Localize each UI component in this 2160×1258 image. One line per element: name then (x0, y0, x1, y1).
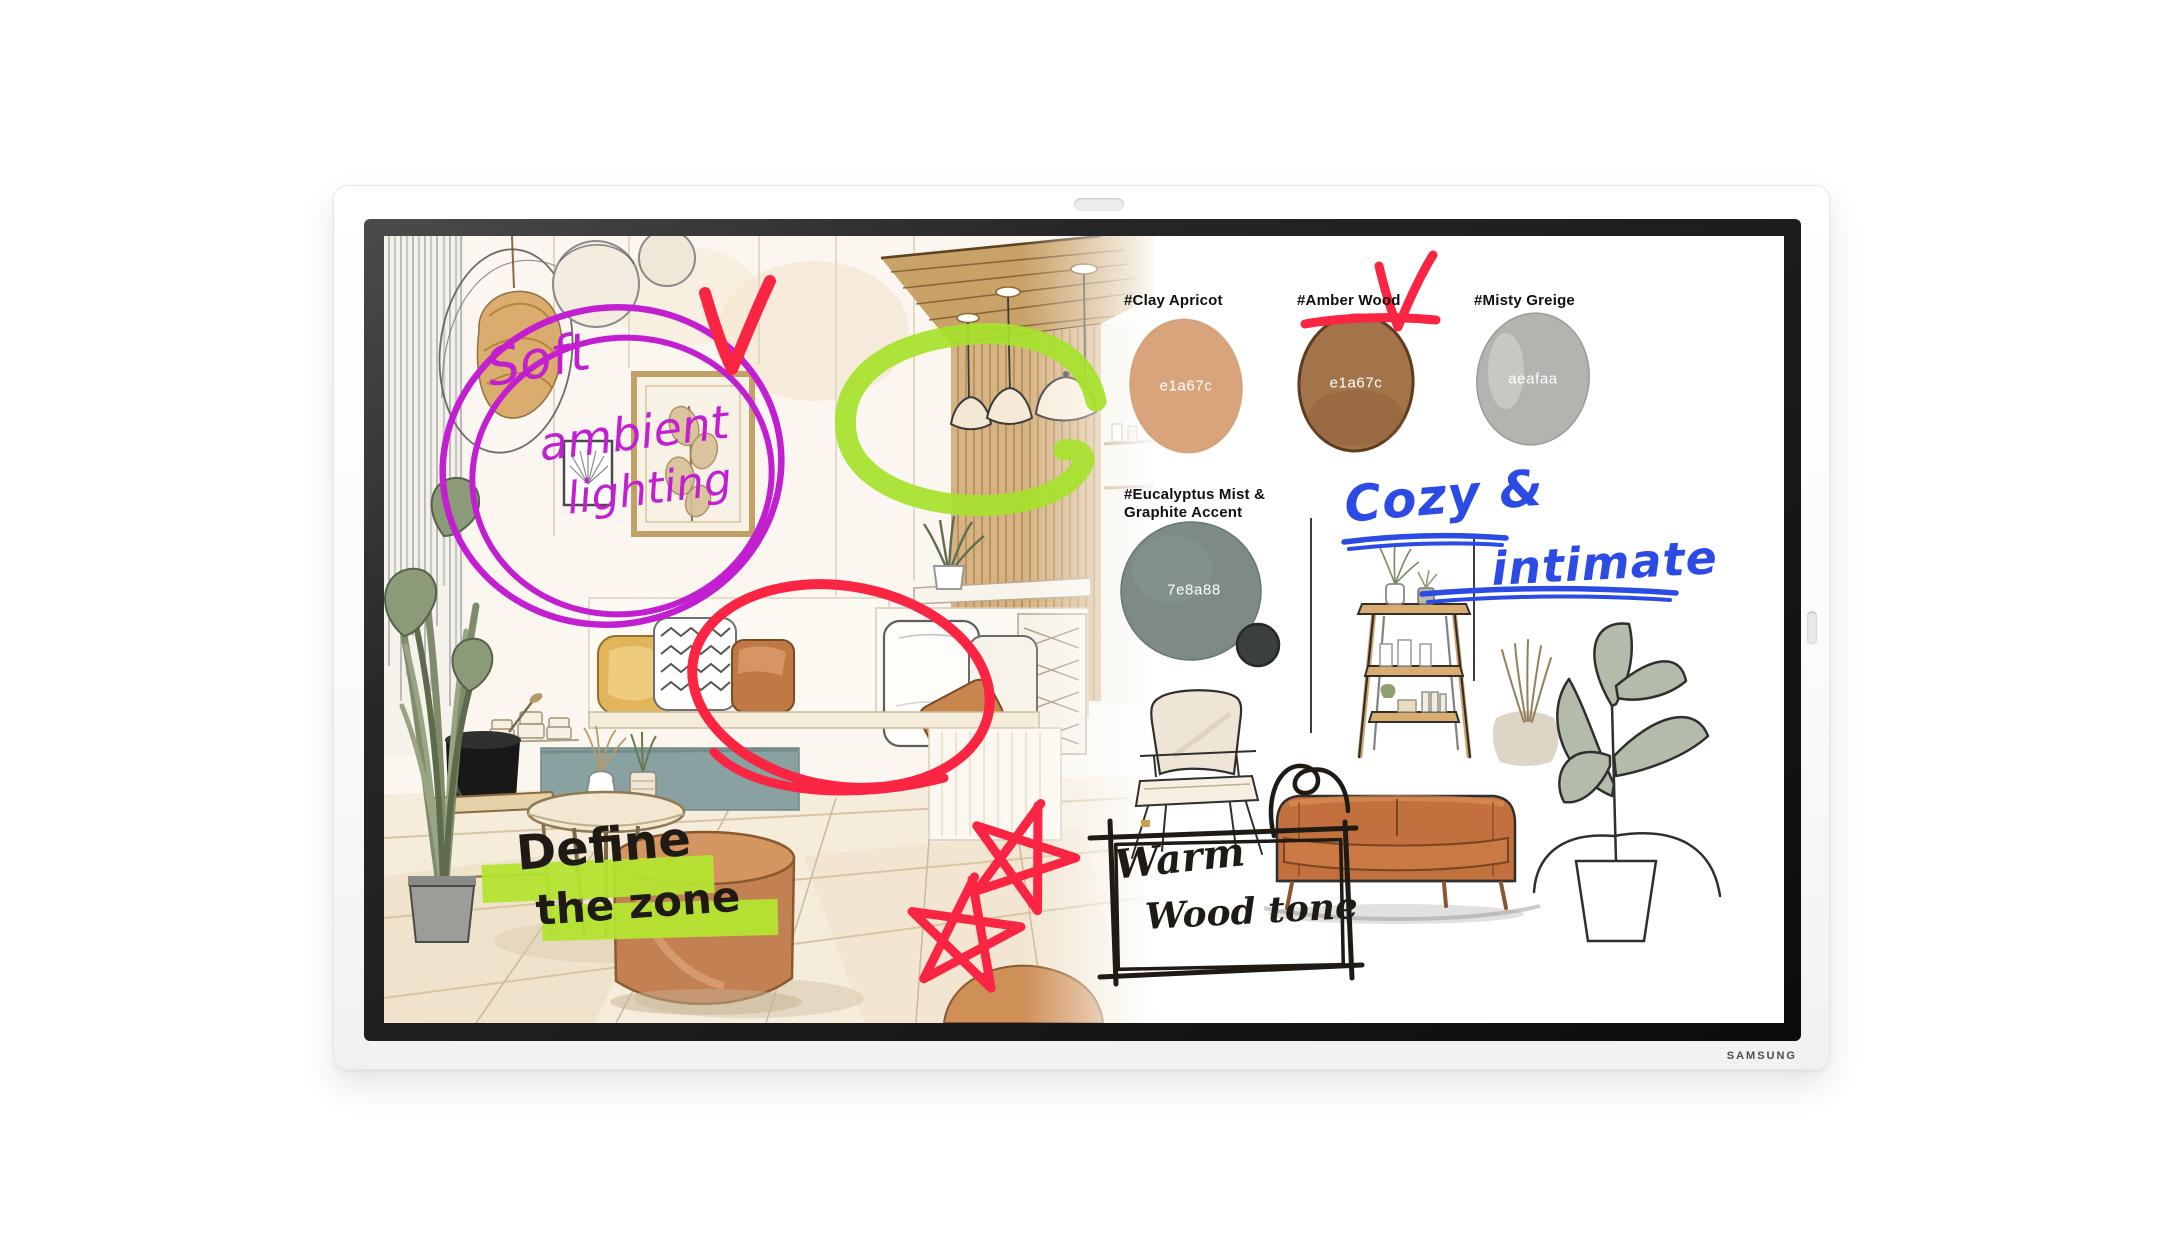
bezel-top-sensor (1074, 198, 1124, 211)
samsung-logo: SAMSUNG (1727, 1050, 1797, 1062)
screen: #Clay Apricot #Amber Wood #Misty Greige … (384, 236, 1784, 1023)
hex-value-misty: aeafaa (1508, 371, 1557, 388)
swatch-label-clay-apricot: #Clay Apricot (1124, 292, 1223, 310)
bezel-side-button[interactable] (1807, 611, 1817, 645)
swatch-label-amber-wood: #Amber Wood (1297, 292, 1401, 310)
swatch-label-line1: #Eucalyptus Mist & (1124, 486, 1265, 504)
hex-value-amber: e1a67c (1330, 375, 1383, 392)
display-frame: SAMSUNG (333, 185, 1830, 1070)
page-background: SAMSUNG (0, 0, 2160, 1258)
hex-value-clay: e1a67c (1160, 378, 1213, 395)
swatch-label-misty-greige: #Misty Greige (1474, 292, 1575, 310)
graphite-accent-swatch (1237, 624, 1279, 666)
swatch-label-line2: Graphite Accent (1124, 504, 1265, 522)
swatch-label-eucalyptus: #Eucalyptus Mist & Graphite Accent (1124, 486, 1265, 522)
hex-value-eucalyptus: 7e8a88 (1167, 582, 1221, 599)
